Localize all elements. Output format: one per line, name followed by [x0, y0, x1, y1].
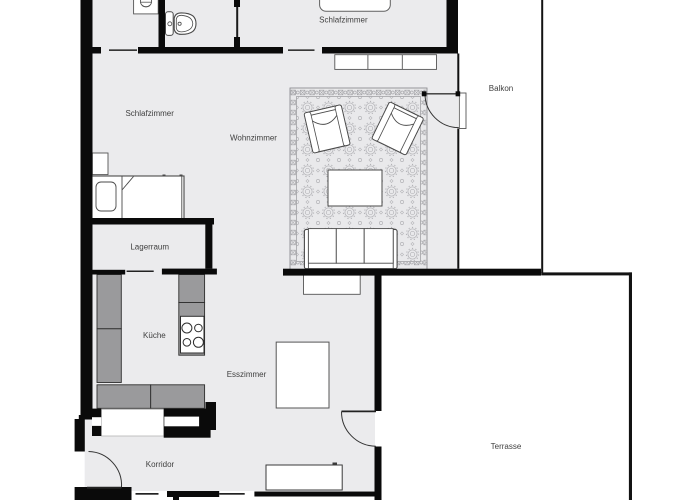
svg-text:Schlafzimmer: Schlafzimmer — [125, 109, 174, 118]
svg-text:Balkon: Balkon — [489, 84, 513, 93]
svg-text:Küche: Küche — [143, 331, 166, 340]
svg-text:Schlafzimmer: Schlafzimmer — [319, 16, 368, 25]
svg-text:Korridor: Korridor — [146, 460, 175, 469]
svg-text:Terrasse: Terrasse — [491, 442, 522, 451]
svg-text:Lagerraum: Lagerraum — [130, 242, 169, 251]
svg-text:Esszimmer: Esszimmer — [227, 370, 267, 379]
svg-text:Wohnzimmer: Wohnzimmer — [230, 134, 277, 143]
